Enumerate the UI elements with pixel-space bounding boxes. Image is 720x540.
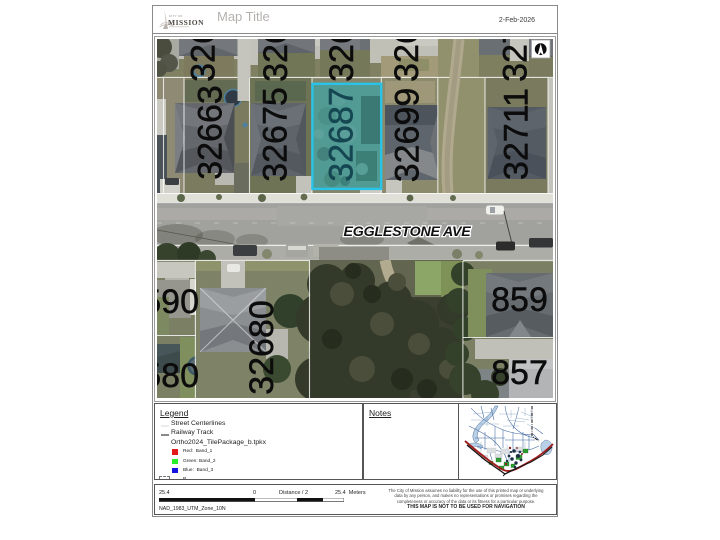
svg-text:580: 580 bbox=[157, 357, 199, 395]
svg-text:32711: 32711 bbox=[497, 88, 535, 180]
svg-text:326: 326 bbox=[388, 39, 426, 82]
svg-text:32663: 32663 bbox=[192, 85, 230, 180]
svg-text:EGGLESTONE AVE: EGGLESTONE AVE bbox=[343, 224, 471, 240]
svg-text:32680: 32680 bbox=[243, 300, 281, 395]
svg-text:MISSION: MISSION bbox=[168, 18, 204, 27]
svg-text:32675: 32675 bbox=[257, 87, 295, 182]
svg-text:326: 326 bbox=[323, 39, 361, 82]
svg-text:326: 326 bbox=[185, 39, 223, 82]
svg-text:857: 857 bbox=[491, 354, 548, 392]
svg-text:859: 859 bbox=[491, 281, 548, 319]
svg-text:327: 327 bbox=[497, 39, 535, 82]
svg-text:326: 326 bbox=[257, 39, 295, 82]
svg-text:590: 590 bbox=[157, 283, 199, 321]
svg-text:32699: 32699 bbox=[389, 88, 427, 183]
